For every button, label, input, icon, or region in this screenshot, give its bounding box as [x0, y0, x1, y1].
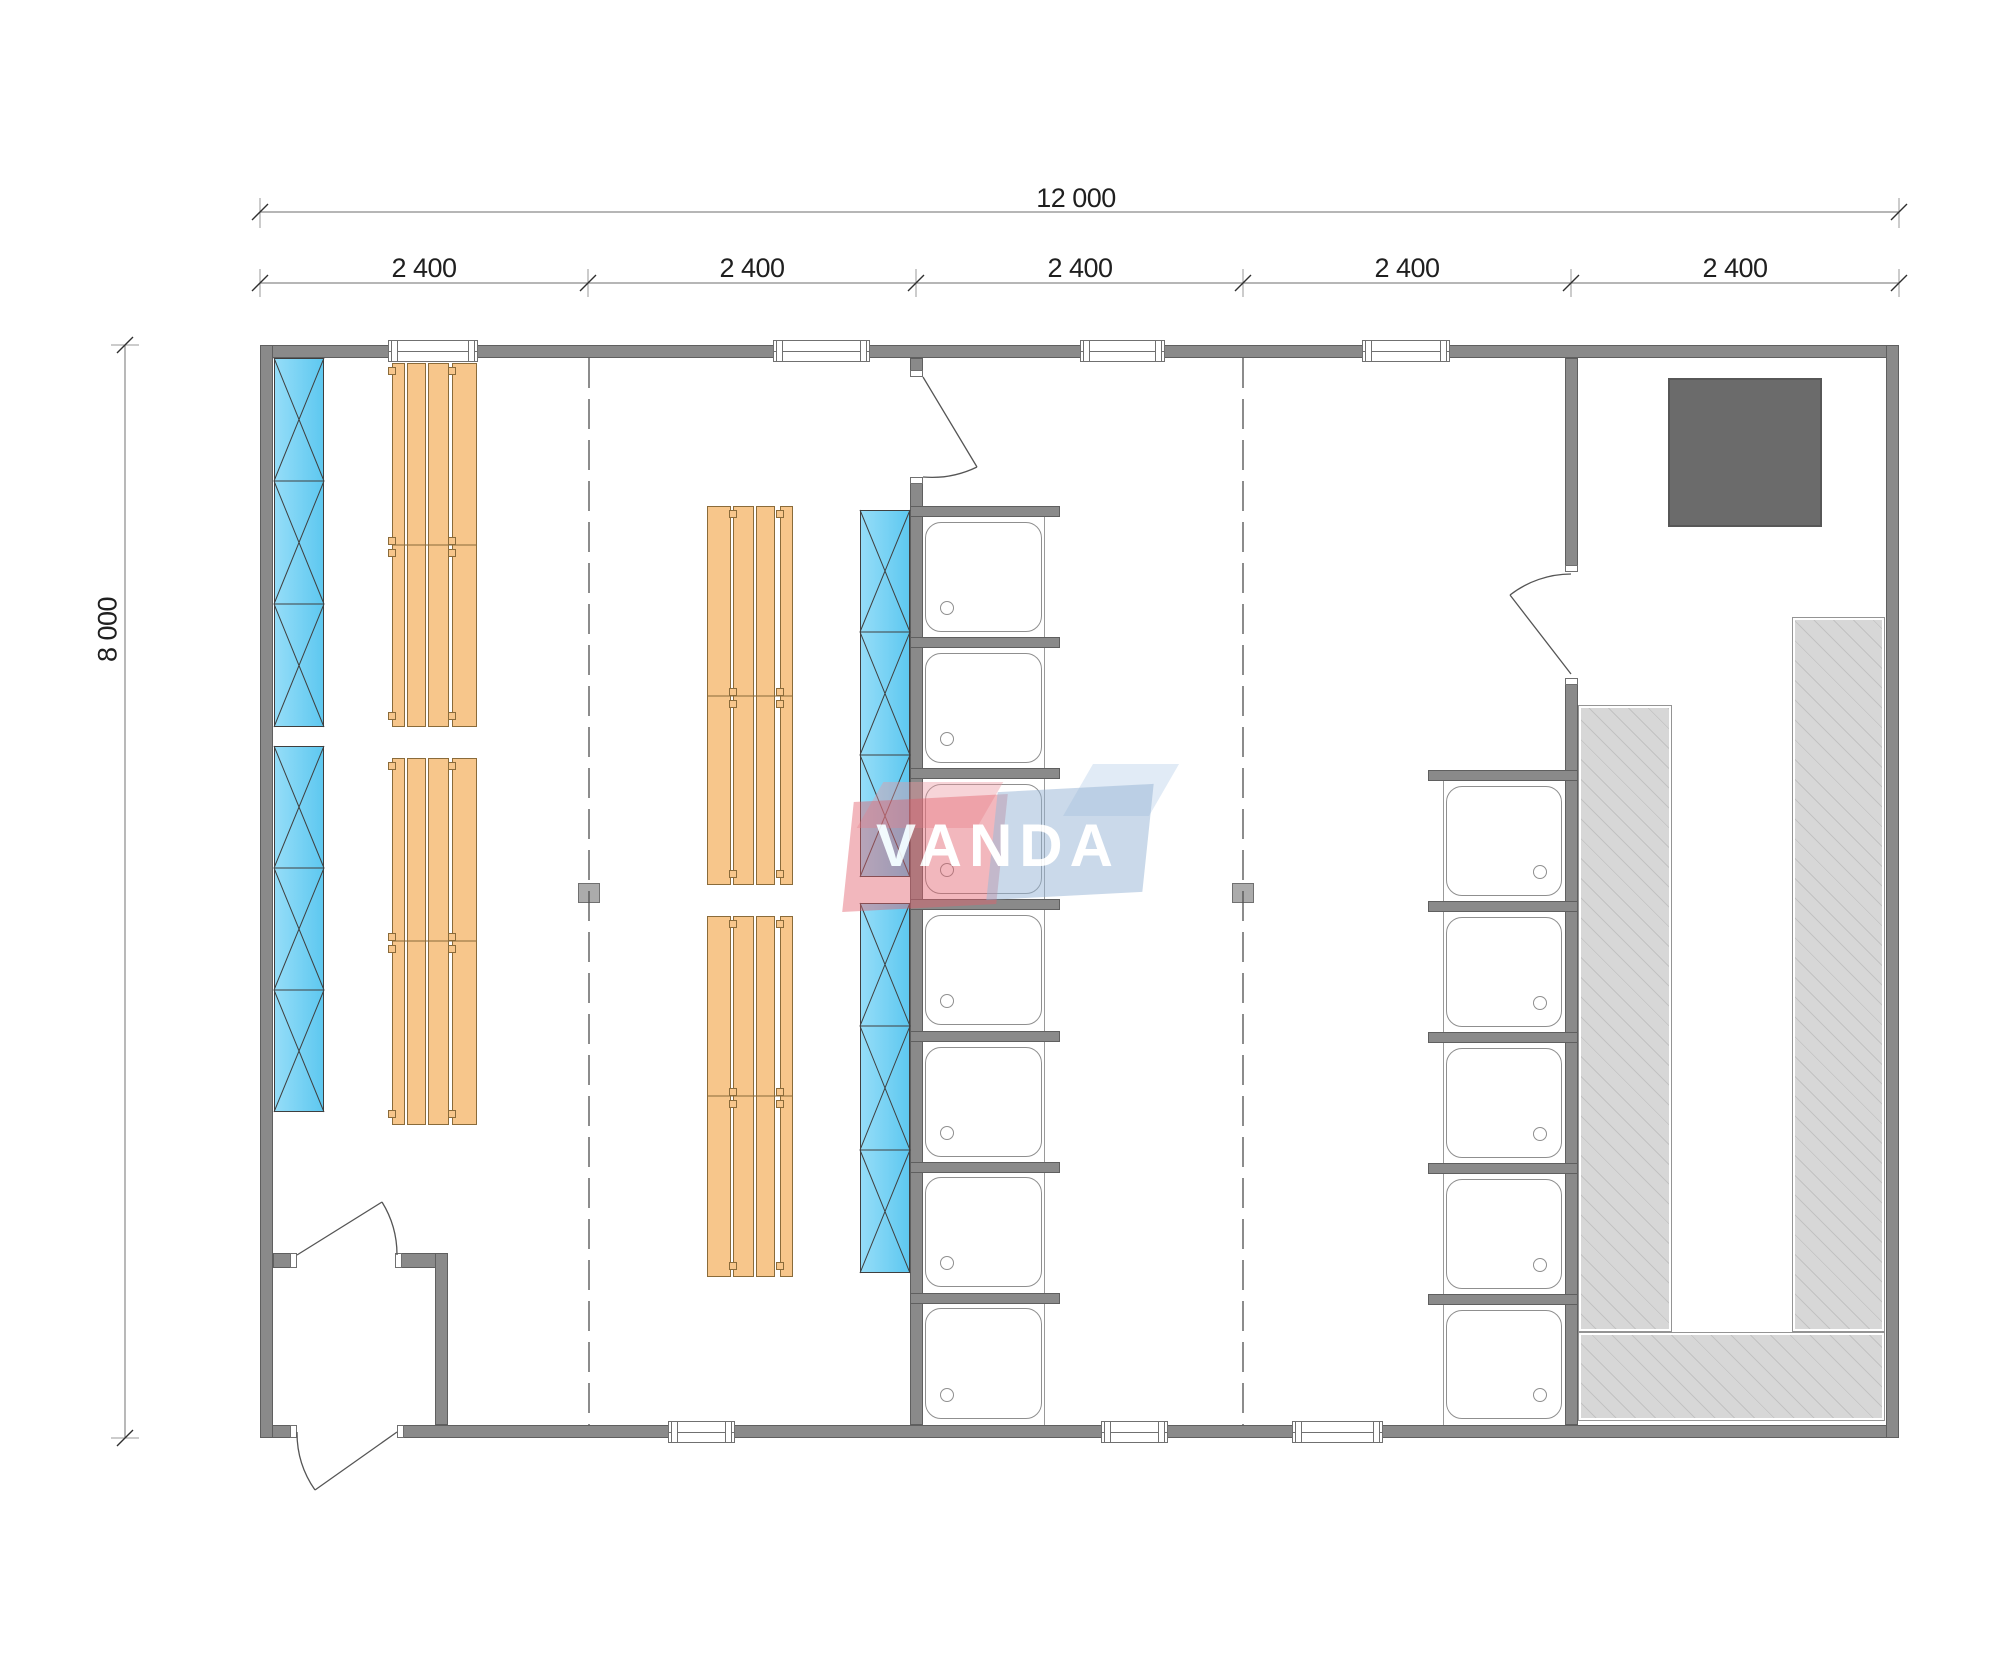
shower-drain: [940, 994, 954, 1008]
bench-bracket: [388, 537, 396, 545]
window: [1362, 340, 1450, 362]
dim-label-bay-3: 2 400: [980, 253, 1180, 284]
bench-bracket: [729, 1100, 737, 1108]
dim-label-bay-4: 2 400: [1307, 253, 1507, 284]
wood-bench-plank: [707, 916, 731, 1277]
bench-bracket: [388, 1110, 396, 1118]
window: [668, 1421, 735, 1443]
shower-tray: [1446, 1310, 1562, 1419]
window: [1101, 1421, 1168, 1443]
bench-bracket: [448, 945, 456, 953]
shower-partition: [910, 1031, 1060, 1042]
wood-bench-plank: [407, 363, 426, 727]
window: [1080, 340, 1165, 362]
stove: [1668, 378, 1822, 527]
shower-drain: [940, 601, 954, 615]
shower-tray: [1446, 1048, 1562, 1158]
door-swing: [297, 1432, 397, 1490]
door-swing: [923, 377, 977, 477]
wood-bench-plank: [452, 363, 477, 727]
shower-drain: [940, 732, 954, 746]
wall-right-room-upper: [1565, 358, 1578, 572]
wood-bench-plank: [707, 506, 731, 885]
shower-drain: [1533, 996, 1547, 1010]
shower-partition: [1428, 1032, 1578, 1043]
cross-braced-bench-left-1: [274, 358, 324, 727]
door-jamb: [290, 1253, 297, 1268]
bench-bracket: [776, 920, 784, 928]
shower-tray: [925, 1308, 1042, 1419]
cross-brace-lines: [274, 358, 910, 1273]
tiered-platform-bottom: [1578, 1332, 1885, 1421]
support-post: [1232, 883, 1254, 903]
wood-bench-plank: [780, 916, 793, 1277]
bench-bracket: [729, 1262, 737, 1270]
bench-bracket: [388, 549, 396, 557]
bench-bracket: [729, 700, 737, 708]
shower-partition: [1428, 770, 1578, 781]
shower-partition: [1428, 1163, 1578, 1174]
window: [1292, 1421, 1383, 1443]
shower-tray: [925, 653, 1042, 763]
bench-bracket: [448, 712, 456, 720]
shower-tray: [1446, 1179, 1562, 1289]
bench-bracket: [776, 688, 784, 696]
bench-bracket: [776, 510, 784, 518]
bench-bracket: [729, 688, 737, 696]
shower-front-edge: [1443, 781, 1444, 1425]
cross-braced-bench-mid-2: [860, 903, 910, 1273]
bench-bracket: [448, 933, 456, 941]
wood-bench-plank: [733, 916, 754, 1277]
bench-bracket: [776, 700, 784, 708]
door-jamb: [395, 1253, 402, 1268]
bench-bracket: [388, 367, 396, 375]
window: [773, 340, 870, 362]
shower-partition: [910, 1293, 1060, 1304]
shower-tray: [925, 915, 1042, 1025]
door-jamb: [290, 1425, 297, 1438]
door-jamb: [910, 477, 923, 484]
dim-label-bay-2: 2 400: [652, 253, 852, 284]
bench-bracket: [388, 762, 396, 770]
bench-bracket: [729, 510, 737, 518]
shower-partition: [910, 506, 1060, 517]
cross-braced-bench-left-2: [274, 746, 324, 1112]
shower-tray: [925, 1177, 1042, 1287]
bench-bracket: [776, 1100, 784, 1108]
shower-tray: [925, 1047, 1042, 1157]
door-jamb: [1565, 678, 1578, 685]
shower-partition: [910, 1162, 1060, 1173]
tiered-platform-right: [1792, 617, 1885, 1332]
shower-tray: [1446, 917, 1562, 1027]
shower-drain: [1533, 1127, 1547, 1141]
watermark-text: VANDA: [842, 816, 1154, 876]
shower-front-edge: [1044, 517, 1045, 1425]
wood-bench-plank: [452, 758, 477, 1125]
shower-partition: [1428, 901, 1578, 912]
dim-label-bay-1: 2 400: [324, 253, 524, 284]
dim-label-bay-5: 2 400: [1635, 253, 1835, 284]
wall-right-room-lower: [1565, 678, 1578, 1425]
wall-right: [1886, 345, 1899, 1438]
support-post: [578, 883, 600, 903]
dim-label-total-width: 12 000: [976, 183, 1176, 214]
door-swing: [1510, 574, 1571, 674]
shower-drain: [940, 1388, 954, 1402]
bench-bracket: [729, 1088, 737, 1096]
wood-bench-plank: [756, 506, 775, 885]
bench-bracket: [776, 1088, 784, 1096]
bench-bracket: [448, 1110, 456, 1118]
door-swing: [297, 1202, 397, 1255]
vestibule-door-opening: [297, 1253, 395, 1268]
wood-bench-plank: [407, 758, 426, 1125]
bench-bracket: [448, 762, 456, 770]
shower-drain: [940, 1256, 954, 1270]
wood-bench-plank: [392, 758, 405, 1125]
wood-bench-plank: [428, 758, 449, 1125]
wood-bench-plank: [756, 916, 775, 1277]
door-jamb: [1565, 565, 1578, 572]
watermark-logo: VANDA: [842, 772, 1154, 912]
dim-label-height: 8 000: [93, 530, 124, 730]
shower-drain: [1533, 865, 1547, 879]
bench-bracket: [388, 945, 396, 953]
entrance-door-opening: [297, 1425, 397, 1438]
bench-bracket: [448, 549, 456, 557]
bench-bracket: [388, 933, 396, 941]
shower-partition: [1428, 1294, 1578, 1305]
shower-drain: [1533, 1258, 1547, 1272]
bench-bracket: [729, 870, 737, 878]
wall-vestibule-vertical: [435, 1253, 448, 1425]
wall-shower-left: [910, 477, 923, 1425]
bench-bracket: [388, 712, 396, 720]
door-jamb: [910, 370, 923, 377]
wall-left: [260, 345, 273, 1438]
bench-bracket: [776, 870, 784, 878]
wall-bottom: [260, 1425, 1899, 1438]
floor-plan: 12 000 2 400 2 400 2 400 2 400 2 400 8 0…: [0, 0, 2000, 1669]
bench-bracket: [448, 537, 456, 545]
window: [388, 340, 478, 362]
shower-tray: [1446, 786, 1562, 896]
shower-drain: [1533, 1388, 1547, 1402]
tiered-platform-left: [1578, 705, 1672, 1332]
shower-tray: [925, 522, 1042, 632]
bench-bracket: [776, 1262, 784, 1270]
door-jamb: [397, 1425, 404, 1438]
shower-drain: [940, 1126, 954, 1140]
wood-bench-plank: [392, 363, 405, 727]
bench-bracket: [729, 920, 737, 928]
bench-bracket: [448, 367, 456, 375]
shower-partition: [910, 637, 1060, 648]
wood-bench-plank: [428, 363, 449, 727]
